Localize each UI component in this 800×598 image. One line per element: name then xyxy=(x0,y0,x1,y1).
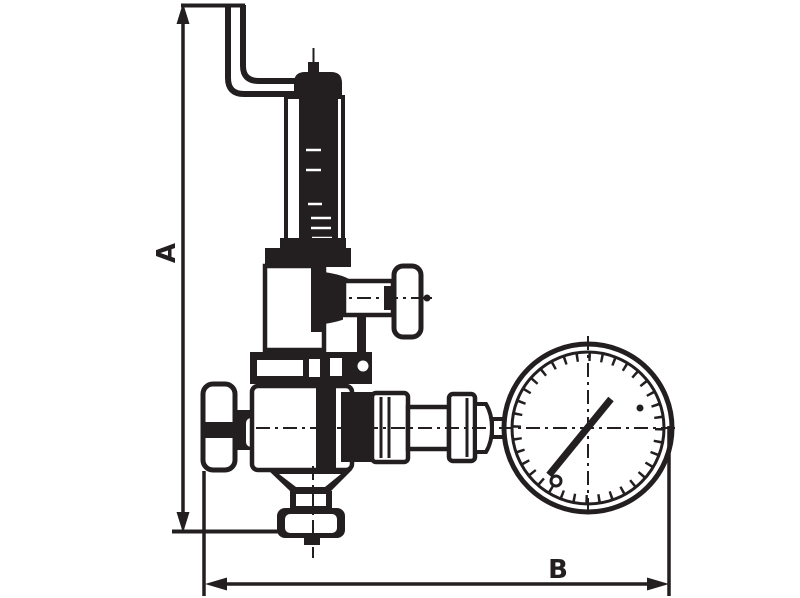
valve-dimensional-drawing: A B xyxy=(0,0,800,598)
inlet-elbow-pipe xyxy=(228,5,299,94)
bottom-connection xyxy=(268,470,352,545)
gauge-dial-dot xyxy=(637,405,644,412)
needle-hub xyxy=(551,476,561,486)
body-flange xyxy=(250,352,372,384)
arrow-right xyxy=(647,578,669,591)
arrow-left xyxy=(205,578,227,591)
dimension-b-label: B xyxy=(548,555,568,585)
dimension-a-label: A xyxy=(152,243,182,263)
technical-drawing-page: A B xyxy=(0,0,800,598)
flange-bolt xyxy=(358,361,369,372)
spring-housing xyxy=(280,97,346,252)
side-handwheel xyxy=(394,266,421,337)
